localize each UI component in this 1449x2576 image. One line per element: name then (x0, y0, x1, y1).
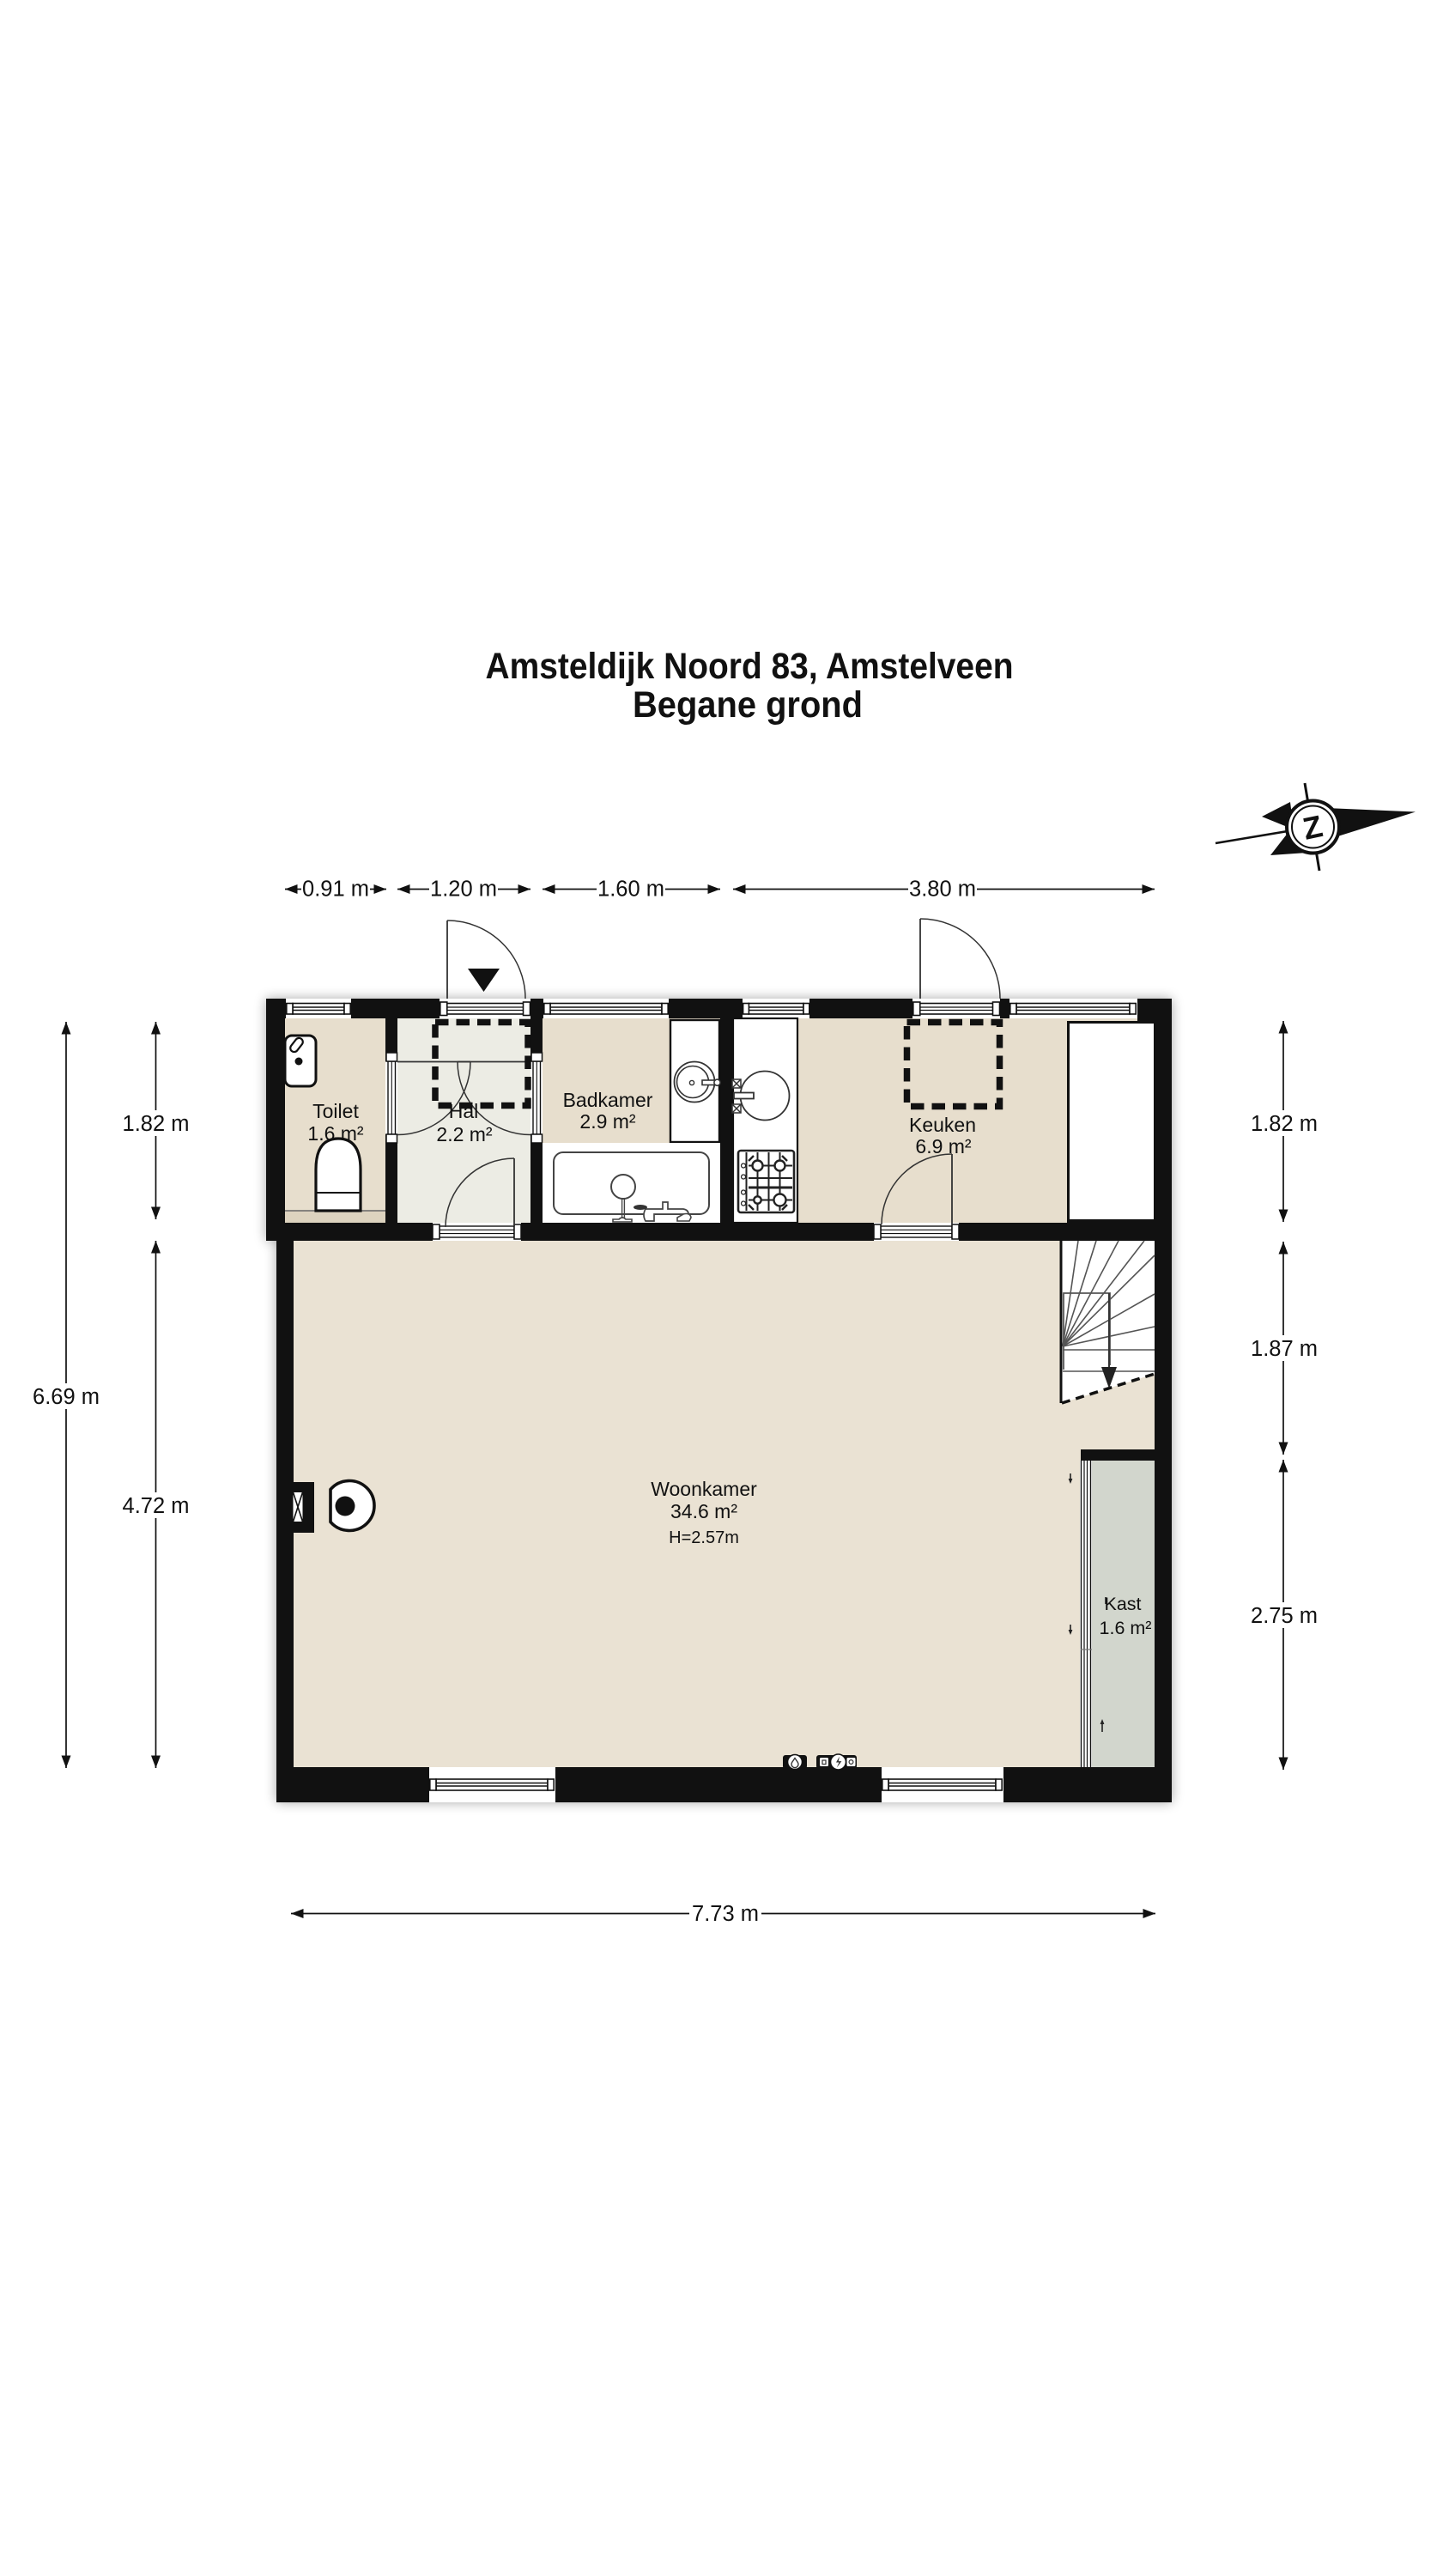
svg-text:1.82 m: 1.82 m (123, 1112, 190, 1136)
svg-text:6.69 m: 6.69 m (33, 1385, 100, 1409)
svg-text:Keuken: Keuken (909, 1114, 976, 1136)
svg-text:2.9 m²: 2.9 m² (579, 1110, 636, 1133)
svg-text:1.87 m: 1.87 m (1251, 1337, 1318, 1361)
svg-text:Badkamer: Badkamer (563, 1089, 653, 1111)
svg-text:1.6 m²: 1.6 m² (307, 1122, 364, 1145)
svg-text:34.6 m²: 34.6 m² (670, 1500, 737, 1522)
svg-text:1.6 m²: 1.6 m² (1100, 1618, 1152, 1638)
svg-text:Woonkamer: Woonkamer (651, 1478, 757, 1500)
svg-text:Hal: Hal (449, 1100, 479, 1122)
svg-text:6.9 m²: 6.9 m² (915, 1135, 972, 1157)
svg-text:1.82 m: 1.82 m (1251, 1112, 1318, 1136)
svg-text:Begane grond: Begane grond (633, 684, 863, 726)
svg-text:2.75 m: 2.75 m (1251, 1604, 1318, 1628)
svg-text:Toilet: Toilet (312, 1100, 359, 1122)
svg-text:H=2.57m: H=2.57m (669, 1528, 739, 1547)
svg-text:1.60 m: 1.60 m (597, 878, 664, 902)
svg-text:1.20 m: 1.20 m (430, 878, 497, 902)
svg-text:3.80 m: 3.80 m (909, 878, 976, 902)
svg-text:2.2 m²: 2.2 m² (436, 1123, 493, 1145)
svg-text:Amsteldijk Noord 83, Amstelvee: Amsteldijk Noord 83, Amstelveen (486, 646, 1014, 687)
svg-text:4.72 m: 4.72 m (123, 1494, 190, 1518)
svg-text:Kast: Kast (1104, 1594, 1141, 1614)
svg-text:7.73 m: 7.73 m (692, 1902, 759, 1926)
svg-text:0.91 m: 0.91 m (302, 878, 369, 902)
